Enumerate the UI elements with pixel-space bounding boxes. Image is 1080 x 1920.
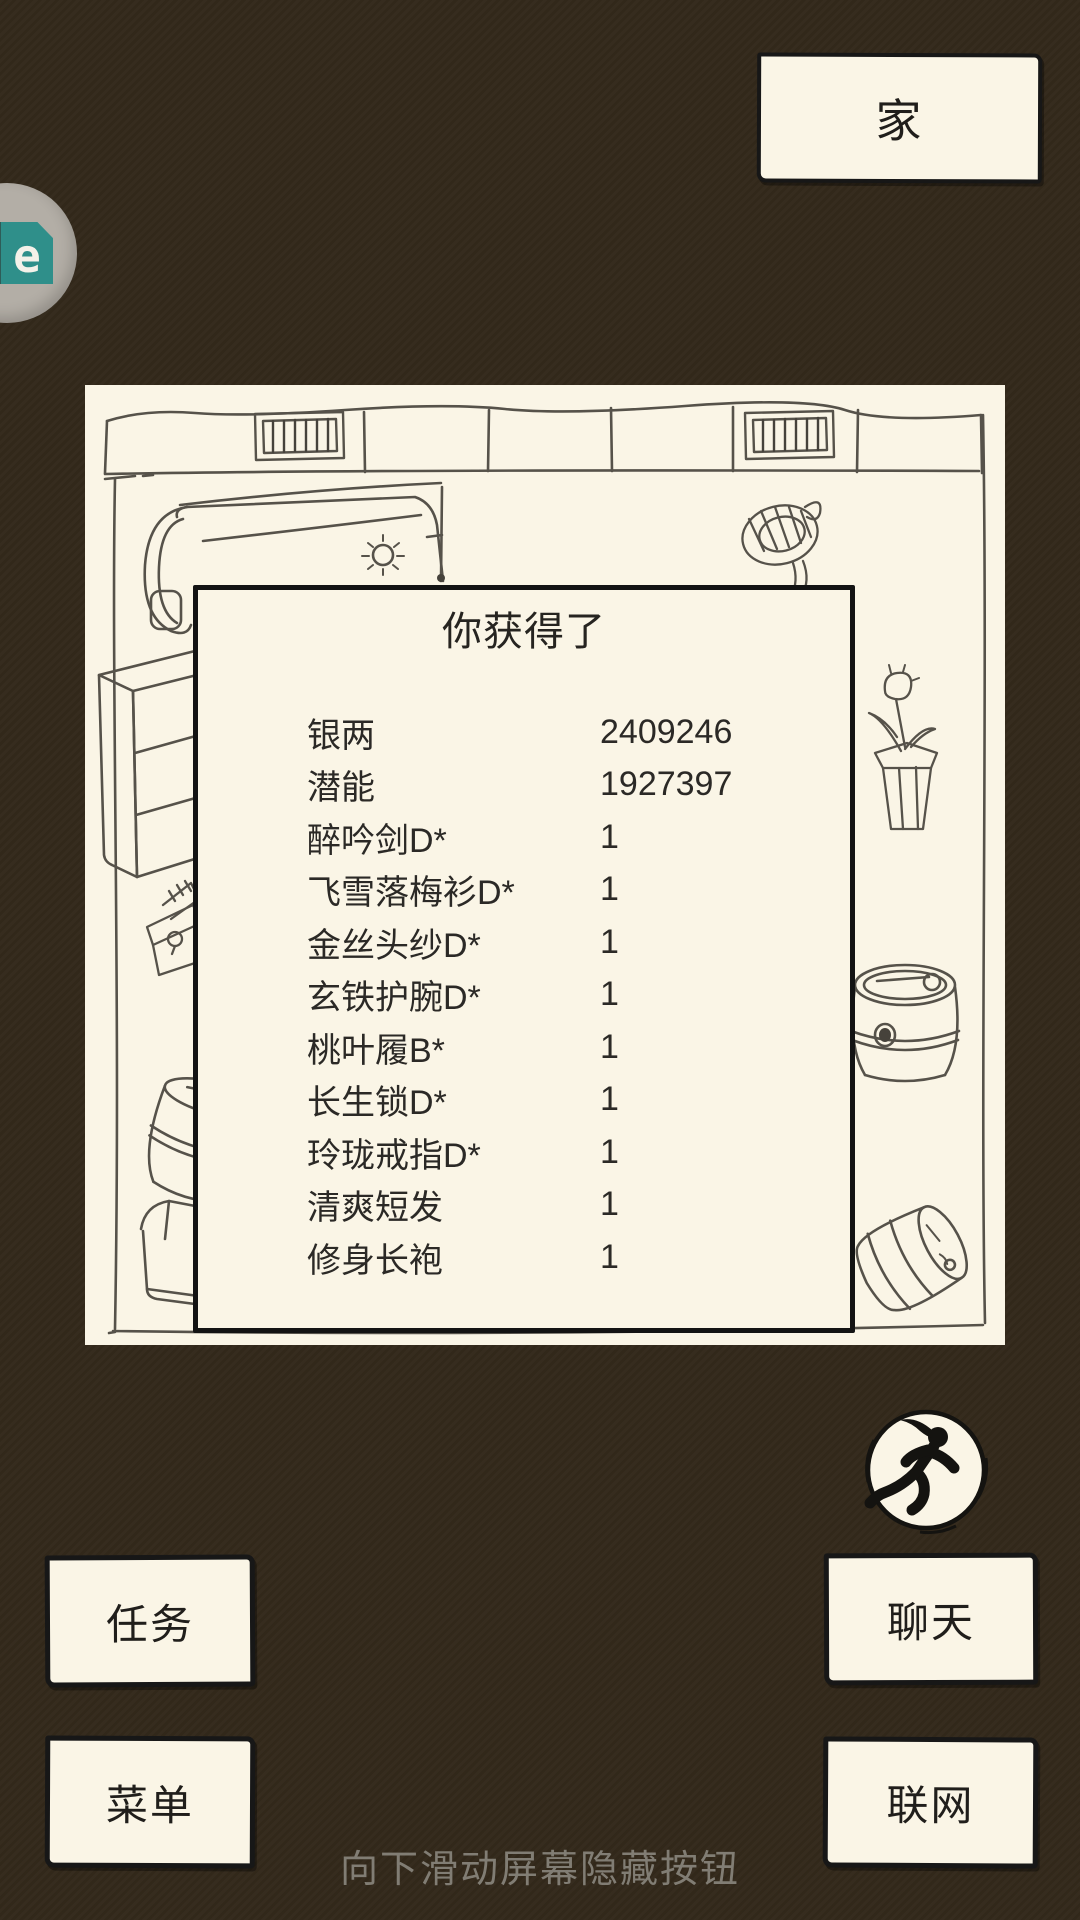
- loot-item-count: 1: [600, 923, 619, 962]
- network-button-label: 联网: [886, 1772, 974, 1833]
- window-right: [745, 411, 834, 459]
- barrel-right-sketch: [851, 965, 959, 1081]
- loot-item-name: 桃叶履B*: [307, 1023, 600, 1072]
- runner-icon: [860, 1404, 992, 1536]
- window-left: [255, 412, 344, 460]
- loot-row: 修身长袍 1: [307, 1231, 850, 1284]
- loot-row: 银两 2409246: [307, 706, 850, 759]
- loot-item-count: 2409246: [600, 713, 732, 752]
- loot-row: 清爽短发 1: [307, 1179, 850, 1232]
- swipe-hint-text: 向下滑动屏幕隐藏按钮: [0, 1838, 1080, 1893]
- chat-button[interactable]: 聊天: [824, 1553, 1038, 1686]
- loot-row: 飞雪落梅衫D* 1: [307, 864, 850, 917]
- loot-item-count: 1: [600, 975, 619, 1014]
- logo-darkteal-block: [0, 222, 1, 284]
- logo-teal-block: e: [1, 222, 53, 284]
- loot-row: 潜能 1927397: [307, 759, 850, 812]
- loot-row: 长生锁D* 1: [307, 1074, 850, 1127]
- loot-item-count: 1: [600, 1238, 619, 1277]
- floating-app-logo: e: [0, 222, 53, 284]
- loot-item-count: 1: [600, 1080, 619, 1119]
- wall-band: [105, 402, 982, 479]
- loot-row: 桃叶履B* 1: [307, 1021, 850, 1074]
- loot-item-name: 潜能: [307, 760, 600, 809]
- loot-item-count: 1: [600, 1028, 619, 1067]
- loot-item-count: 1927397: [600, 765, 732, 804]
- tasks-button-label: 任务: [106, 1590, 194, 1651]
- tasks-button[interactable]: 任务: [45, 1554, 256, 1687]
- loot-item-name: 金丝头纱D*: [307, 918, 600, 967]
- floating-app-icon[interactable]: e: [0, 183, 77, 323]
- loot-item-name: 玲珑戒指D*: [307, 1128, 600, 1177]
- left-wall-line: [114, 479, 117, 1329]
- home-button-label: 家: [875, 85, 923, 151]
- loot-item-name: 醉吟剑D*: [307, 813, 600, 862]
- loot-item-name: 飞雪落梅衫D*: [307, 865, 600, 914]
- chat-button-label: 聊天: [887, 1588, 975, 1649]
- loot-list: 银两 2409246 潜能 1927397 醉吟剑D* 1 飞雪落梅衫D* 1 …: [198, 706, 850, 1284]
- loot-item-name: 银两: [307, 708, 600, 757]
- loot-item-name: 清爽短发: [307, 1180, 600, 1229]
- loot-row: 玄铁护腕D* 1: [307, 969, 850, 1022]
- loot-item-count: 1: [600, 1185, 619, 1224]
- loot-item-name: 修身长袍: [307, 1233, 600, 1282]
- run-button[interactable]: [860, 1404, 992, 1536]
- loot-item-count: 1: [600, 1133, 619, 1172]
- loot-row: 醉吟剑D* 1: [307, 811, 850, 864]
- plant-sketch: [869, 665, 937, 829]
- loot-item-name: 玄铁护腕D*: [307, 970, 600, 1019]
- loot-dialog[interactable]: 你获得了 银两 2409246 潜能 1927397 醉吟剑D* 1 飞雪落梅衫…: [193, 585, 855, 1333]
- logo-letter: e: [13, 229, 41, 283]
- loot-dialog-title: 你获得了: [198, 610, 850, 654]
- barrel-bottomright-sketch: [846, 1196, 978, 1321]
- loot-item-count: 1: [600, 870, 619, 909]
- home-button[interactable]: 家: [757, 53, 1042, 184]
- loot-item-name: 长生锁D*: [307, 1075, 600, 1124]
- menu-button-label: 菜单: [106, 1771, 194, 1832]
- loot-item-count: 1: [600, 818, 619, 857]
- right-wall-line: [983, 415, 985, 1323]
- loot-row: 金丝头纱D* 1: [307, 916, 850, 969]
- loot-row: 玲珑戒指D* 1: [307, 1126, 850, 1179]
